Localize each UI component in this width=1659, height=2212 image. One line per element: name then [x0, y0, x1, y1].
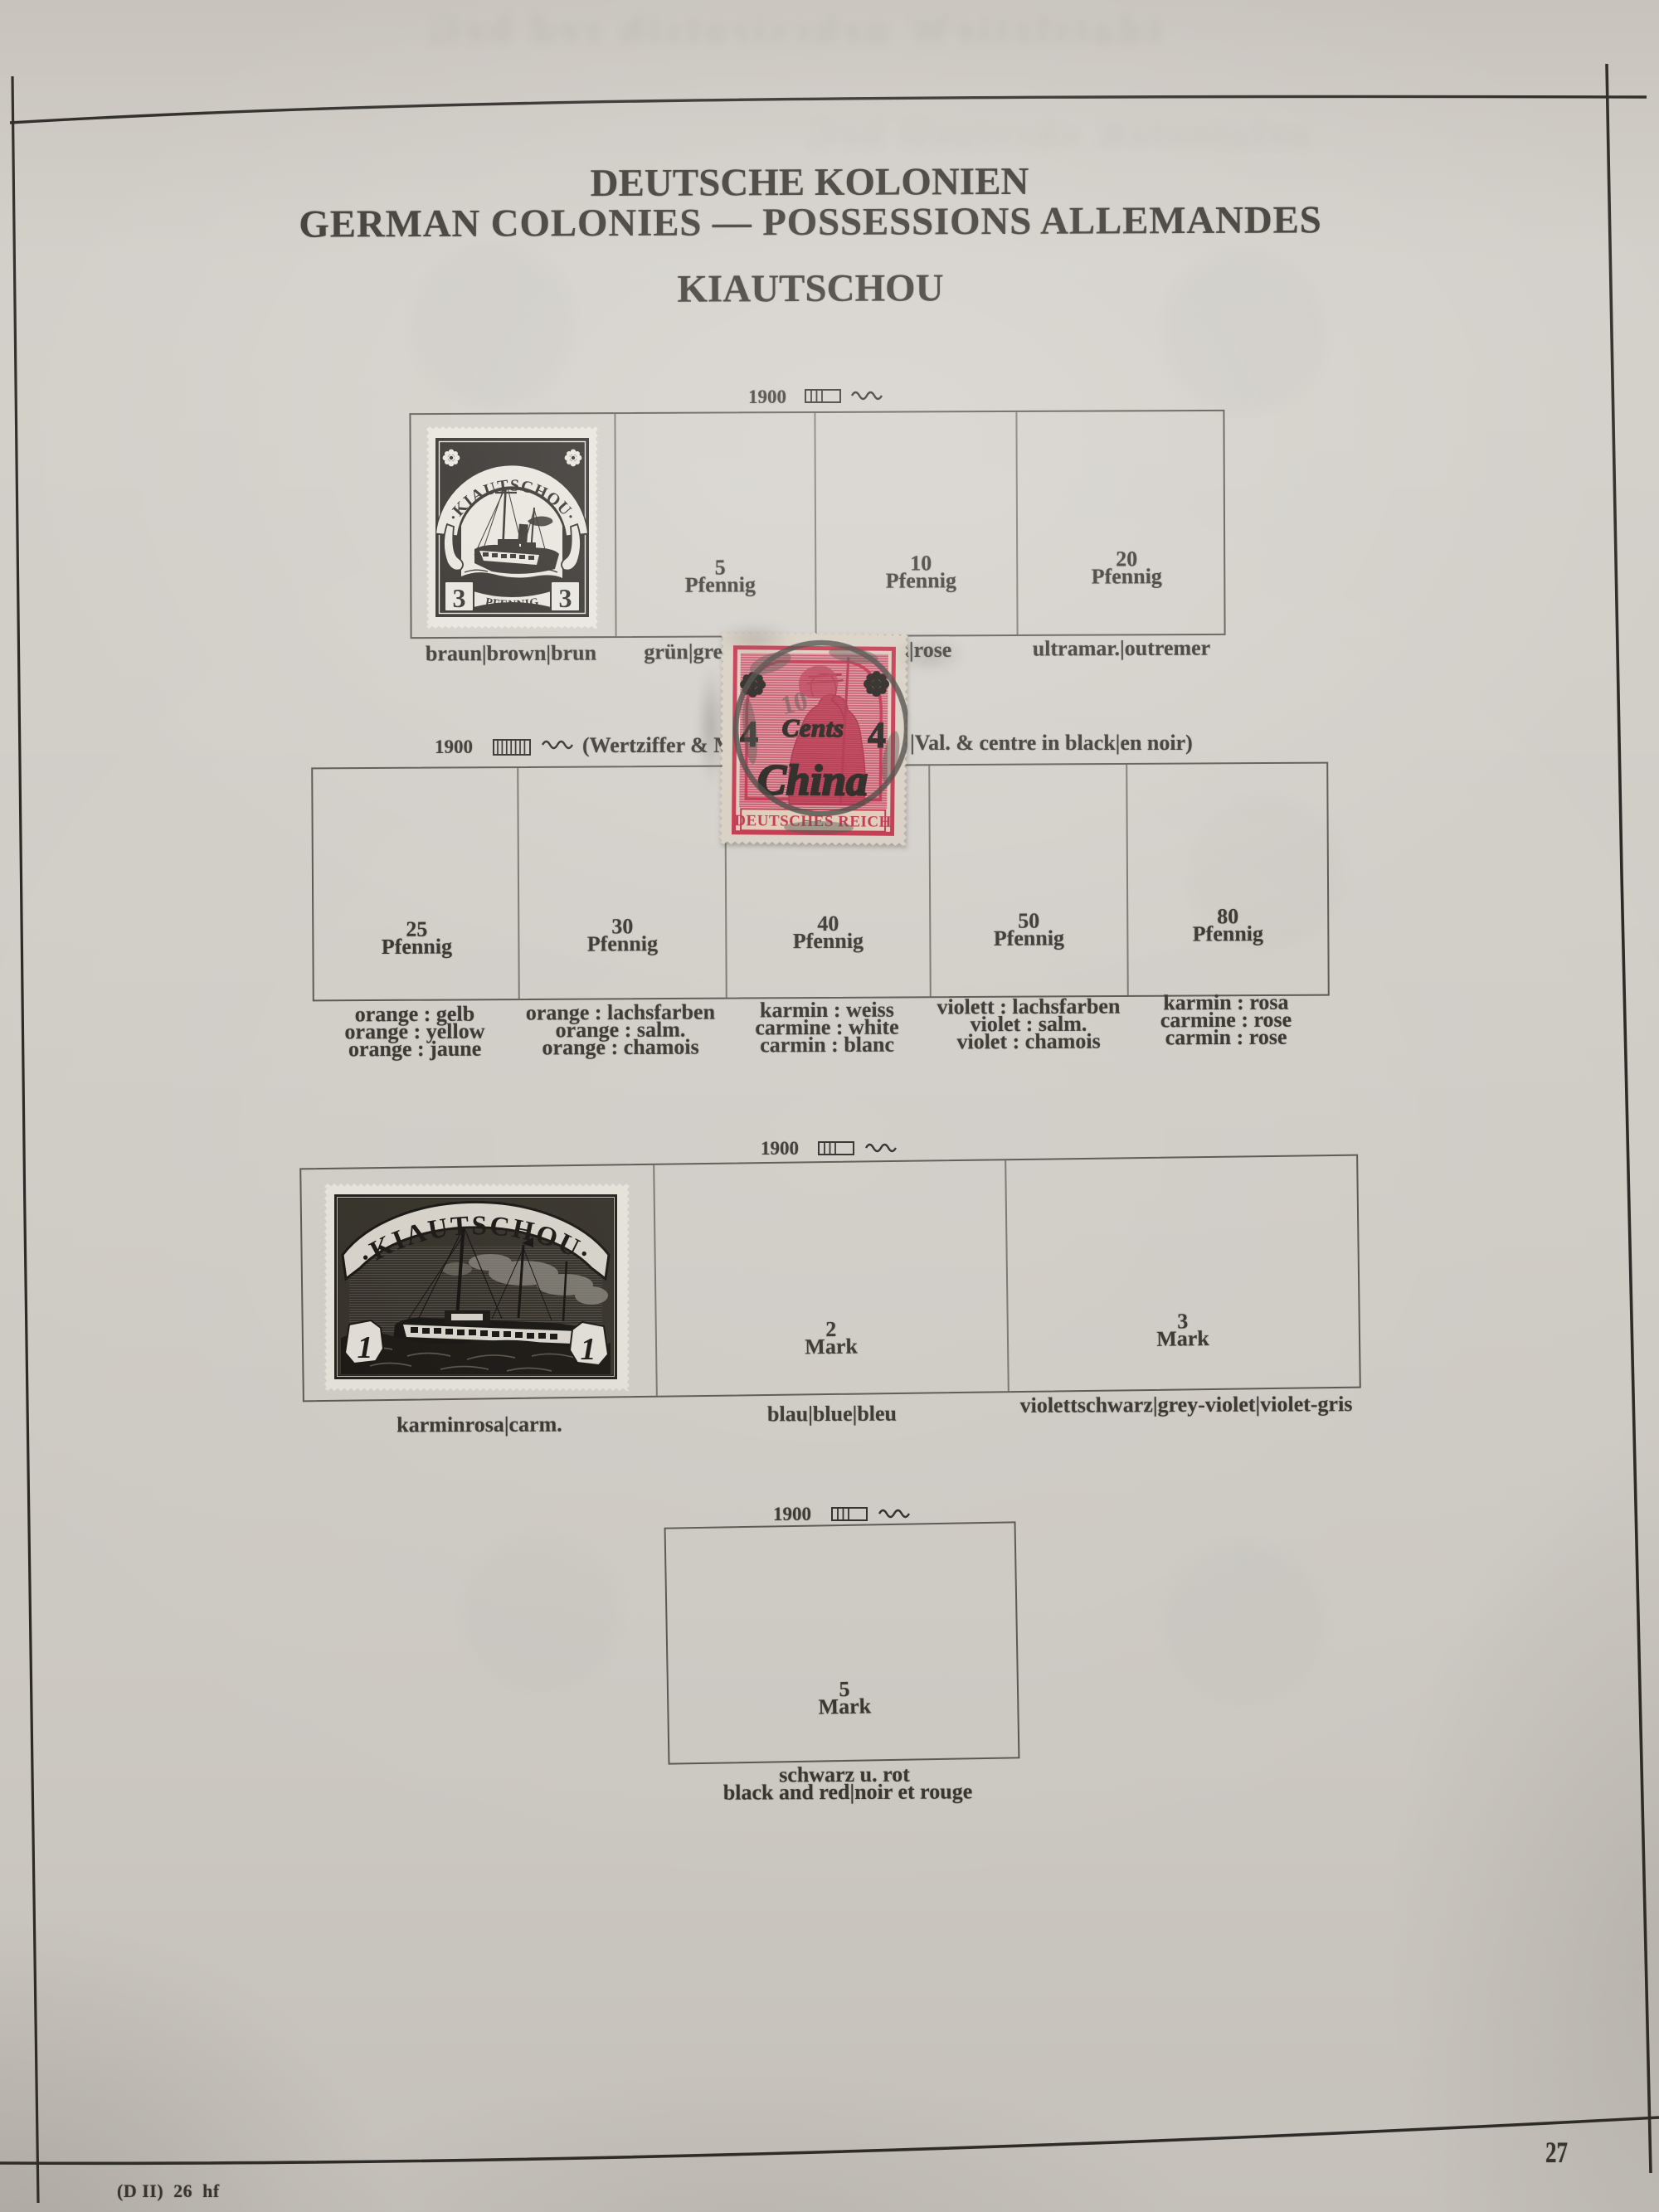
svg-text:1: 1 [358, 1330, 373, 1365]
svg-text:3: 3 [453, 583, 466, 613]
svg-text:3: 3 [559, 583, 572, 613]
svg-text:1: 1 [581, 1332, 596, 1367]
svg-text:4: 4 [868, 715, 886, 756]
svg-text:Cents: Cents [782, 713, 844, 743]
